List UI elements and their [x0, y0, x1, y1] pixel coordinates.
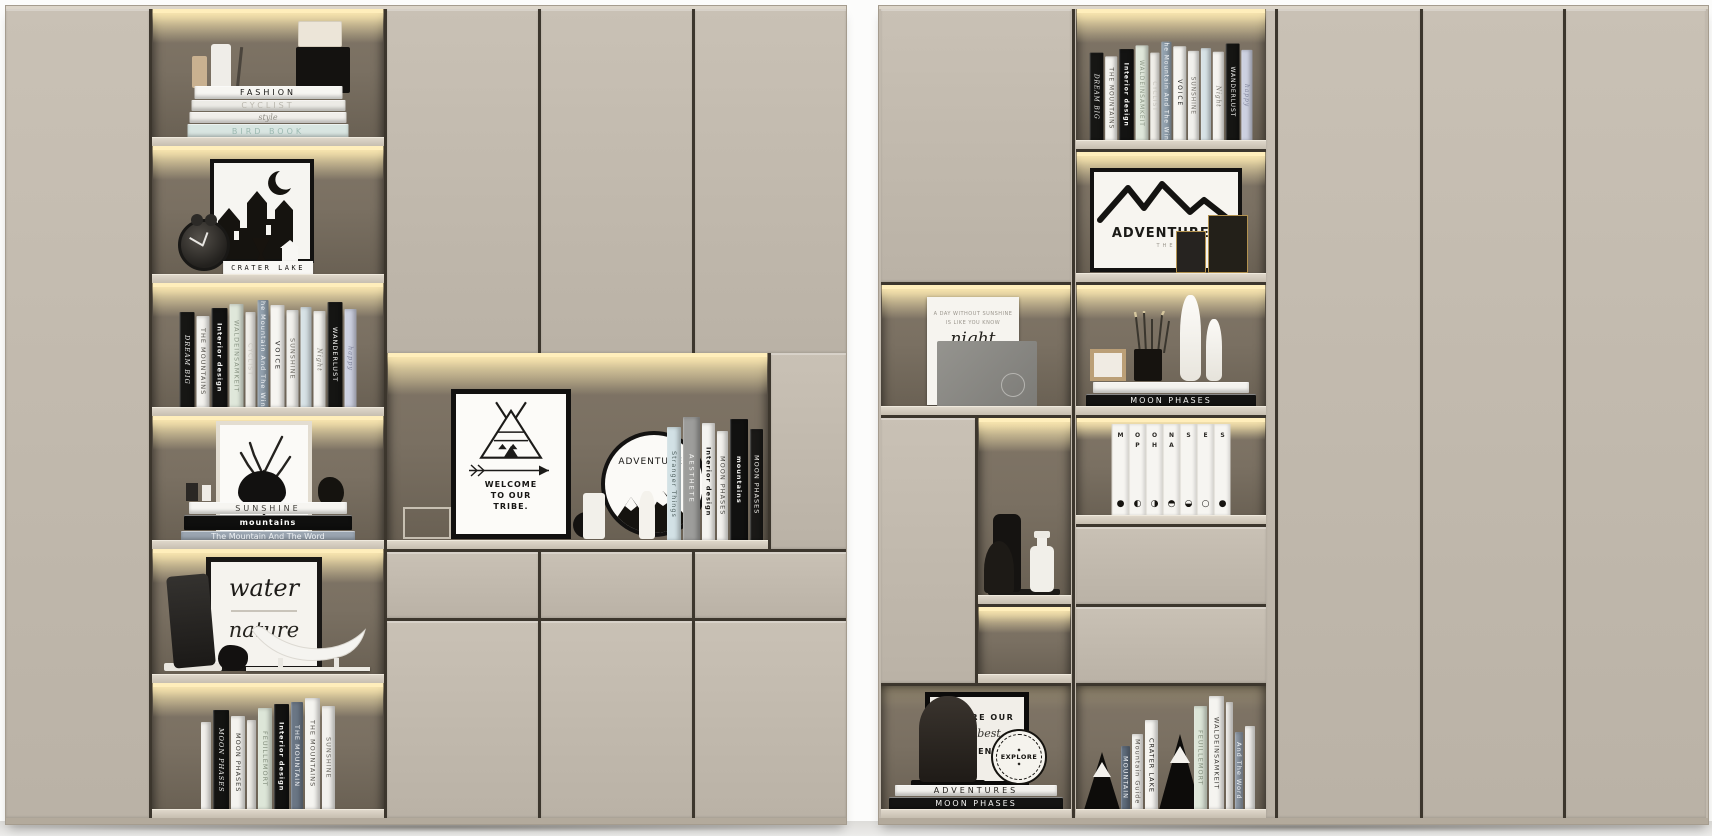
wire-basket	[403, 507, 451, 539]
brushes	[1132, 311, 1172, 353]
book-spine: THE MOUNTAINS	[197, 316, 210, 408]
book-spine: MOON PHASES	[750, 429, 763, 541]
book-spine: MOON PHASES	[231, 716, 245, 810]
white-bottle-cap	[1034, 531, 1050, 538]
books-row: MOUNTAINMountain GuideCRATER LAKE	[1120, 720, 1159, 810]
white-cylinder-vase	[583, 493, 605, 539]
lower-door-1	[387, 621, 538, 818]
book-spine: WANDERLUST	[1226, 43, 1240, 141]
book-spine: MOUNTAIN	[1121, 746, 1130, 810]
furniture-render-scene: FASHIONCYCLISTstyleBIRD BOOK	[0, 0, 1712, 836]
badge-mark-icon: ◆	[1017, 761, 1020, 767]
shelf-board	[152, 809, 384, 818]
moon-phases-book-set: M●O P◐O H◑N A◓S◒E○S●	[1112, 424, 1231, 516]
book-spine: VOICE	[271, 305, 285, 408]
lower-door-3	[695, 621, 846, 818]
book-spine: WALDEINSAMKEIT	[1136, 45, 1149, 141]
book-stack: FASHIONCYCLISTstyleBIRD BOOK	[188, 85, 349, 138]
book-spine: style	[190, 112, 347, 123]
phone	[166, 573, 216, 668]
moon-book-letters: N A	[1169, 431, 1174, 450]
upper-door-3	[695, 9, 846, 353]
book-spine: SUNSHINE	[1188, 51, 1199, 141]
moon-book-letters: S	[1220, 431, 1224, 441]
shelf-board	[881, 809, 1071, 818]
book-spine: CRATER LAKE	[1145, 720, 1158, 810]
tipi-text-2: TO OUR	[456, 491, 566, 500]
moon-phases-book: E○	[1197, 424, 1214, 516]
pen	[236, 47, 243, 89]
book-spine	[247, 720, 256, 810]
shelf-cell-1: FASHIONCYCLISTstyleBIRD BOOK	[152, 9, 384, 146]
upper-door-2	[541, 9, 692, 353]
bookend-group-2: FEUILLEMORTWALDEINSAMKEITAnd The Word	[1193, 696, 1256, 810]
shelf-board	[152, 274, 384, 283]
book-spine: Interior design	[702, 423, 715, 541]
book-stack: ADVENTURESMOON PHASES	[889, 784, 1063, 810]
shelf-board	[152, 540, 384, 549]
book-spine: CYCLIST	[191, 100, 345, 111]
upper-door-1	[387, 9, 538, 353]
shelf-board	[1076, 140, 1266, 149]
shelf-board	[152, 674, 384, 683]
books-row: DREAM BIGTHE MOUNTAINSInterior designWAL…	[1089, 42, 1254, 141]
white-candle	[211, 44, 231, 90]
moon-phase-icon: ◒	[1185, 499, 1193, 509]
book-spine: SUNSHINE	[287, 310, 299, 408]
gold-trim-box-large	[1208, 215, 1248, 273]
shelf-board	[1076, 273, 1266, 282]
book-spine: The Mountain And The Wind	[258, 300, 269, 408]
book-spine: MOON PHASES	[213, 710, 229, 810]
moon-phases-book: O P◐	[1129, 424, 1146, 516]
display-books-row: Stranger ThingsAESTHETEInterior designMO…	[666, 417, 764, 541]
card-box	[298, 21, 342, 47]
book-stack: SUNSHINEmountainsThe Mountain And The Wo…	[181, 501, 355, 541]
book-spine: SUNSHINE	[189, 502, 347, 514]
shelf-cell-6: MOON PHASESMOON PHASESFEUILLEMORTInterio…	[152, 683, 384, 818]
book-spine: Night	[314, 311, 326, 408]
bookend-group-1: MOUNTAINMountain GuideCRATER LAKE	[1084, 720, 1201, 810]
teepee-art	[456, 398, 566, 462]
book-spine: ADVENTURES	[895, 785, 1057, 796]
white-bottle	[1030, 546, 1054, 592]
book-spine: Mountain Guide	[1132, 734, 1143, 810]
moon-phases-book: S◒	[1180, 424, 1197, 516]
colA-mid-door	[881, 418, 975, 683]
shelf-board	[1076, 515, 1266, 524]
book-spine	[301, 307, 312, 408]
shelf-board	[978, 595, 1071, 604]
tipi-text-1: WELCOME	[456, 480, 566, 489]
book-spine: FEUILLEMORT	[258, 708, 272, 810]
colC-drawer-1	[1076, 527, 1266, 604]
shelf-board	[387, 540, 768, 549]
drawer-1	[387, 552, 538, 618]
tall-door-2	[1423, 9, 1563, 818]
snow-cap	[1170, 746, 1190, 763]
colC-books-niche: DREAM BIGTHE MOUNTAINSInterior designWAL…	[1076, 9, 1266, 149]
explore-badge: ◆ EXPLORE ◆	[991, 729, 1047, 785]
led-glow	[388, 353, 767, 395]
book-spine	[1201, 48, 1211, 141]
book-spine: Interior design	[212, 308, 228, 408]
small-candle	[202, 485, 211, 501]
book-spine: THE MOUNTAIN	[291, 702, 303, 810]
brush-cup	[1134, 349, 1162, 381]
book-spine	[201, 722, 211, 810]
panel-gap	[1072, 9, 1075, 818]
shelf-cell-2: CRATER LAKE	[152, 146, 384, 283]
books-row: DREAM BIGTHE MOUNTAINSInterior designWAL…	[179, 300, 358, 408]
book-spine: VOICE	[1173, 46, 1186, 141]
arrow-icon	[465, 464, 557, 477]
side-panel	[771, 353, 846, 549]
black-stone	[218, 645, 248, 671]
clock-hand	[202, 232, 208, 245]
book-spine: The Mountain And The Wind	[1161, 42, 1171, 141]
dark-candle	[186, 483, 198, 501]
short-white-vase	[1206, 319, 1222, 381]
book-spine: Interior design	[274, 704, 289, 810]
left-cabinet: FASHIONCYCLISTstyleBIRD BOOK	[5, 5, 847, 825]
panel-gap	[538, 621, 541, 818]
moon-phase-icon: ◐	[1134, 499, 1142, 509]
shelf-board	[152, 407, 384, 416]
moon-phases-book: N A◓	[1163, 424, 1180, 516]
cabinet-base	[6, 818, 846, 824]
led-glow	[153, 9, 383, 43]
right-cabinet: A DAY WITHOUT SUNSHINE IS LIKE YOU KNOW …	[878, 5, 1709, 825]
display-niche: WELCOME TO OUR TRIBE. ADVENTURES Strange…	[387, 353, 768, 549]
book-spine: happy	[1241, 50, 1252, 141]
book-spine	[1226, 702, 1233, 810]
moon-book-letters: O H	[1152, 431, 1157, 450]
shelf-cell-4: SUNSHINEmountainsThe Mountain And The Wo…	[152, 416, 384, 549]
moon-phases-book: S●	[1214, 424, 1231, 516]
colC-bookend-niche: MOUNTAINMountain GuideCRATER LAKE FEUILL…	[1076, 686, 1266, 818]
book-spine: DREAM BIG	[1090, 53, 1104, 141]
small-empty-niche	[978, 607, 1071, 683]
book-spine: Stranger Things	[667, 427, 681, 541]
mountain-bookend	[1084, 752, 1120, 810]
book-spine	[1093, 382, 1249, 393]
left-tall-door	[6, 9, 149, 818]
book-spine: Night	[1213, 52, 1224, 141]
moon-book-letters: M	[1118, 431, 1124, 441]
art-word-water: water	[211, 574, 317, 602]
badge-label: EXPLORE	[1001, 753, 1038, 761]
moon-phase-icon: ●	[1117, 499, 1125, 509]
book-spine: mountains	[730, 419, 748, 541]
shelf-board	[152, 137, 384, 146]
panel-gap	[692, 621, 695, 818]
book-spine: And The Word	[1235, 732, 1243, 810]
tall-door-3	[1566, 9, 1706, 818]
gold-trim-box-small	[1176, 231, 1206, 273]
horn-sculpture	[248, 616, 368, 668]
tipi-text-3: TRIBE.	[456, 502, 566, 511]
book-spine	[1245, 726, 1255, 810]
colC-adventure-niche: ADVENTURES THE	[1076, 152, 1266, 282]
logo-emblem	[1001, 373, 1025, 397]
tall-white-vase	[1180, 295, 1201, 381]
colA-top-door	[881, 9, 1071, 282]
book-spine: happy	[345, 309, 357, 408]
shelf-board	[1076, 809, 1266, 818]
poster-line-1: A DAY WITHOUT SUNSHINE	[927, 311, 1019, 317]
dark-cloche	[919, 696, 977, 782]
shelf-board	[1076, 406, 1266, 415]
book-stack: MOON PHASES	[1086, 381, 1256, 407]
moon-book-letters: O P	[1135, 431, 1140, 450]
moon-book-letters: E	[1203, 431, 1207, 441]
book-spine: WALDEINSAMKEIT	[230, 304, 244, 408]
open-shelf-column: FASHIONCYCLISTstyleBIRD BOOK	[152, 9, 384, 818]
drawer-3	[695, 552, 846, 618]
book-spine: FASHION	[194, 86, 342, 99]
poster-line-2: IS LIKE YOU KNOW	[927, 320, 1019, 326]
moon-phase-icon: ○	[1202, 499, 1210, 509]
colC-moonset-niche: M●O P◐O H◑N A◓S◒E○S●	[1076, 418, 1266, 524]
tall-door-1	[1278, 9, 1420, 818]
bookend-triangle	[1084, 752, 1120, 810]
grey-book	[937, 341, 1037, 407]
dark-dome-vase	[984, 541, 1014, 593]
led-glow	[979, 418, 1070, 452]
book-spine: SUNSHINE	[322, 706, 335, 810]
books-row: MOON PHASESMOON PHASESFEUILLEMORTInterio…	[200, 698, 336, 810]
shelf-cell-3: DREAM BIGTHE MOUNTAINSInterior designWAL…	[152, 283, 384, 416]
book-spine: mountains	[184, 515, 352, 530]
beige-candle	[192, 56, 207, 88]
book-spine: FEUILLEMORT	[1194, 706, 1207, 810]
shelf-cell-5: water nature	[152, 549, 384, 683]
led-glow	[979, 607, 1070, 633]
book-spine: WANDERLUST	[328, 302, 343, 408]
drawer-2	[541, 552, 692, 618]
moon-phases-book: O H◑	[1146, 424, 1163, 516]
book-spine: CYCLIST	[246, 312, 256, 408]
crater-lake-plaque: CRATER LAKE	[223, 261, 313, 275]
book-spine: WALDEINSAMKEIT	[1209, 696, 1224, 810]
book-spine: Interior design	[1119, 49, 1134, 141]
book-spine: CYCLIST	[1150, 53, 1159, 141]
book-spine: BIRD BOOK	[188, 124, 349, 138]
moon-phase-icon: ●	[1219, 499, 1227, 509]
book-spine: MOON PHASES	[717, 431, 728, 541]
colC-desk-niche: MOON PHASES	[1076, 285, 1266, 415]
lower-door-2	[541, 621, 692, 818]
book-spine: THE MOUNTAINS	[305, 698, 320, 810]
moon-phase-icon: ◓	[1168, 499, 1176, 509]
explore-niche: ARE OUR best ADVENTURE ◆ EXPLORE ◆ ADVEN…	[881, 686, 1071, 818]
bottle-niche	[978, 418, 1071, 604]
moon-phases-book: M●	[1112, 424, 1129, 516]
poster-niche: A DAY WITHOUT SUNSHINE IS LIKE YOU KNOW …	[881, 285, 1071, 415]
house-figurine-roof	[280, 240, 300, 248]
wooden-mini-frame	[1090, 349, 1126, 381]
snow-cap	[1093, 762, 1111, 777]
white-vase	[639, 491, 655, 539]
colC-drawer-2	[1076, 607, 1266, 683]
book-spine: THE MOUNTAINS	[1105, 56, 1117, 141]
led-glow	[1077, 9, 1265, 43]
moon-book-letters: S	[1186, 431, 1190, 441]
art-rule	[231, 610, 297, 612]
shelf-board	[978, 674, 1071, 683]
cabinet-base	[879, 818, 1708, 824]
tipi-art-frame: WELCOME TO OUR TRIBE.	[451, 389, 571, 539]
shelf-board	[881, 406, 1071, 415]
book-spine: AESTHETE	[683, 417, 700, 541]
moon-phase-icon: ◑	[1151, 499, 1159, 509]
book-spine: DREAM BIG	[180, 312, 195, 408]
